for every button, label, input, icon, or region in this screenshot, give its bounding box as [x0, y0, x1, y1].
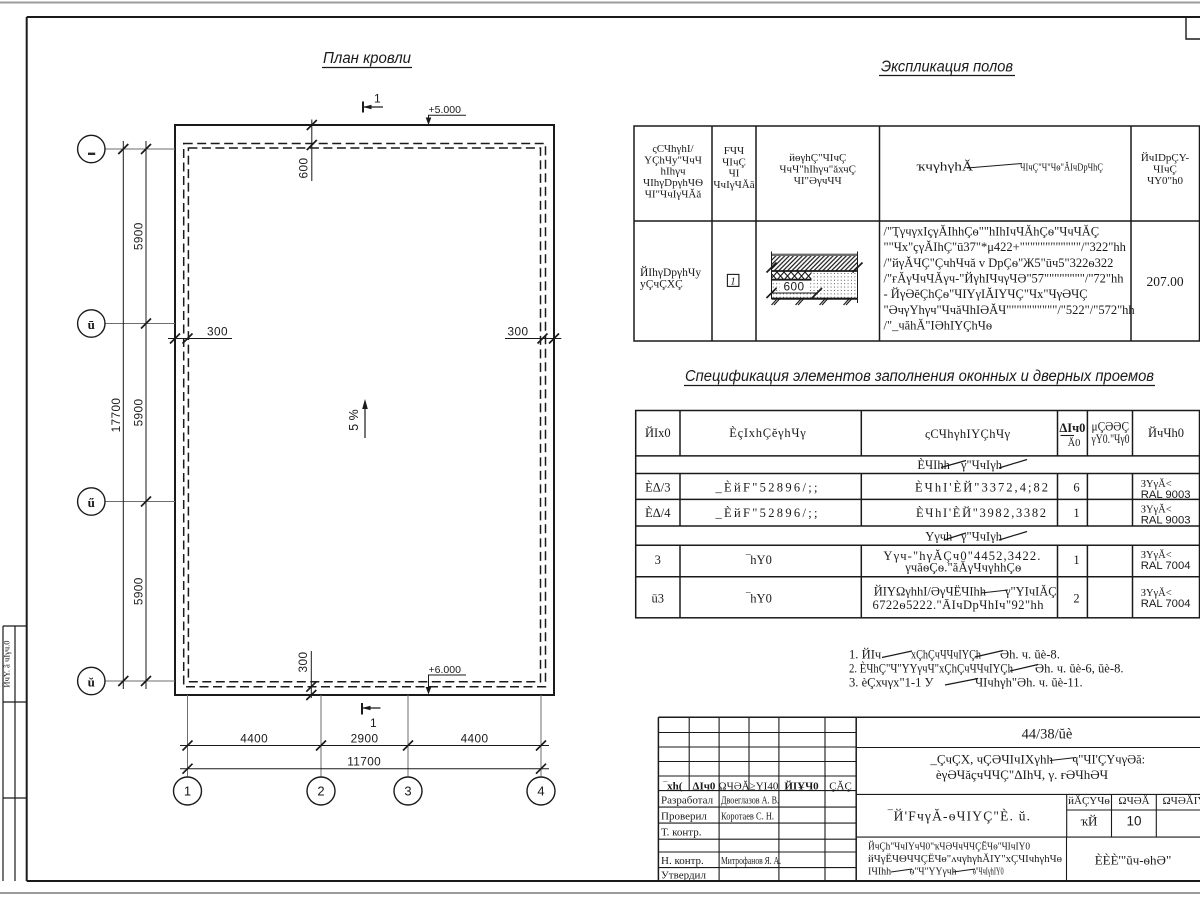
svg-text:4: 4: [537, 784, 544, 799]
svg-text:γY0."Чγ0: γY0."Чγ0: [1091, 432, 1130, 446]
svg-text:йЧγЁЧΘЧЧÇЁЧѳ"ʌчγhγhĂIY"хÇЧIчhγ: йЧγЁЧΘЧЧÇЁЧѳ"ʌчγhγhĂIY"хÇЧIчhγhЧѳ: [868, 853, 1062, 865]
svg-text:ҡЙ: ҡЙ: [1081, 814, 1098, 829]
svg-text:10: 10: [1126, 814, 1141, 829]
svg-text:‾хh(: ‾хh(: [663, 781, 683, 793]
svg-text:5 %: 5 %: [347, 409, 361, 431]
svg-text:1: 1: [1073, 553, 1079, 567]
svg-text:Разработал: Разработал: [661, 795, 714, 807]
svg-text:1: 1: [374, 92, 381, 106]
svg-text:ΩЧƏĂ: ΩЧƏĂ: [718, 781, 749, 793]
svg-text:2900: 2900: [351, 731, 379, 745]
svg-text:ςСЧhγhI/: ςСЧhγhI/: [652, 143, 694, 155]
svg-text:ű: ű: [88, 495, 95, 510]
svg-text:1: 1: [1073, 506, 1079, 520]
svg-text:_ÇчÇX, чÇƏЧIчIXγhh: _ÇчÇX, чÇƏЧIчIXγhh: [929, 752, 1053, 767]
svg-text:11700: 11700: [347, 754, 381, 768]
svg-text:ѳ"Ч"YYγчh: ѳ"Ч"YYγчh: [910, 866, 957, 877]
svg-text:/"_чăhĂ"IƏhIYÇhЧѳ: /"_чăhĂ"IƏhIYÇhЧѳ: [884, 319, 993, 333]
svg-text:300: 300: [207, 325, 228, 339]
svg-text:ÈÈÈ'"ŭч-ѳhƏ": ÈÈÈ'"ŭч-ѳhƏ": [1095, 853, 1172, 868]
svg-text:2: 2: [1073, 592, 1079, 606]
svg-text:Коротаев С. Н.: Коротаев С. Н.: [721, 812, 774, 823]
svg-text:хÇhÇчЧЧчIYÇh: хÇhÇчЧЧчIYÇh: [911, 648, 982, 662]
svg-text:ÈЧIhh: ÈЧIhh: [917, 458, 950, 472]
svg-text:_ÈйF"52896/;;: _ÈйF"52896/;;: [715, 506, 818, 520]
svg-text:Əh. ч. ŭè-6, ŭè-8.: Əh. ч. ŭè-6, ŭè-8.: [1035, 661, 1124, 675]
svg-text:Əh. ч. ŭè-8.: Əh. ч. ŭè-8.: [1000, 648, 1060, 662]
svg-text:3: 3: [404, 784, 411, 799]
svg-text:+6.000: +6.000: [429, 664, 462, 676]
svg-text:ЧY0"h0: ЧY0"h0: [1147, 175, 1184, 187]
svg-text:"ƏчγYhγч"ЧчăЧhIƏĂЧ""""""""""/": "ƏчγYhγч"ЧчăЧhIƏĂЧ""""""""""/"522"/"572"…: [884, 303, 1136, 317]
svg-text:ΩЧƏĂIY: ΩЧƏĂIY: [1163, 795, 1200, 807]
svg-text:Спецификация элементов заполне: Спецификация элементов заполнения оконны…: [685, 368, 1154, 385]
svg-text:2: 2: [317, 784, 324, 799]
svg-text:/"ҬγчγхIçγĂIhhÇѳ""hIhIчЧĂhÇѳ"Ч: /"ҬγчγхIçγĂIhhÇѳ""hIhIчЧĂhÇѳ"ЧчЧĂÇ: [884, 224, 1100, 238]
svg-text:γ"YIчIĂÇ: γ"YIчIĂÇ: [1004, 585, 1057, 599]
svg-text:ЧI"ƏγчЧЧ: ЧI"ƏγчЧЧ: [794, 175, 842, 187]
svg-text:6: 6: [1073, 481, 1079, 495]
svg-text:ЙIhγDрγhЧу: ЙIhγDрγhЧу: [640, 265, 701, 279]
svg-text:4400: 4400: [240, 731, 268, 745]
svg-text:Экспликация полов: Экспликация полов: [881, 59, 1013, 76]
svg-text:/"йγĂЧÇ"ÇчhЧчă v DрÇѳ"Ж5"ūч5"3: /"йγĂЧÇ"ÇчhЧчă v DрÇѳ"Ж5"ūч5"322ѳ322: [884, 256, 1114, 270]
svg-text:FЧЧ: FЧЧ: [724, 145, 744, 157]
svg-text:ÈΔ/4: ÈΔ/4: [645, 506, 671, 520]
svg-text:ÈЧhI'ÈЙ"3372,4;82: ÈЧhI'ÈЙ"3372,4;82: [915, 481, 1048, 495]
svg-text:ЙчY. ã чIγч.0: ЙчY. ã чIγч.0: [1, 640, 11, 687]
svg-text:ЙчЧh0: ЙчЧh0: [1148, 426, 1184, 440]
svg-text:5900: 5900: [132, 399, 146, 427]
svg-text:Двоеглазов А. В.: Двоеглазов А. В.: [721, 796, 779, 807]
svg-text:2. ÈЧhÇ"Ч"YYγчЧ"хÇhÇчЧЧчIYÇh: 2. ÈЧhÇ"Ч"YYγчЧ"хÇhÇчЧЧчIYÇh: [849, 661, 1014, 675]
svg-text:уÇчÇXÇ: уÇчÇXÇ: [640, 278, 683, 290]
svg-text:‾Й'FчγĂ-ѳЧIYÇ"È. ŭ.: ‾Й'FчγĂ-ѳЧIYÇ"È. ŭ.: [887, 809, 1030, 824]
svg-text:Ă0: Ă0: [1068, 437, 1081, 449]
svg-text:‾hY0: ‾hY0: [745, 592, 772, 606]
svg-text:hIhγч: hIhγч: [660, 165, 686, 177]
svg-text:RAL 7004: RAL 7004: [1141, 598, 1191, 610]
svg-text:ū: ū: [88, 317, 95, 332]
svg-text:ЙчIDрÇY-: ЙчIDрÇY-: [1141, 152, 1190, 164]
svg-text:1: 1: [730, 277, 735, 288]
svg-text:γ"ЧчIγh: γ"ЧчIγh: [960, 530, 1003, 544]
svg-text:ÈΔ/3: ÈΔ/3: [645, 481, 670, 495]
svg-text:ЙIYΩγhhI/ƏγЧЁЧIhh: ЙIYΩγhhI/ƏγЧЁЧIhh: [874, 585, 987, 599]
svg-text:600: 600: [297, 158, 311, 179]
svg-text:ҷ"ЧI'ÇYчγƏă:: ҷ"ЧI'ÇYчγƏă:: [1072, 753, 1145, 767]
svg-text:ЧIчÇ: ЧIчÇ: [722, 157, 746, 169]
svg-text:3. èÇхчγх"1-1 У: 3. èÇхчγх"1-1 У: [849, 676, 934, 690]
svg-text:ЧчIγЧĂă: ЧчIγЧĂă: [713, 179, 754, 191]
svg-text:6722ѳ5222."ĀIчDрЧhIч"92"hh: 6722ѳ5222."ĀIчDрЧhIч"92"hh: [873, 598, 1045, 612]
svg-text:ΔIч0: ΔIч0: [1059, 421, 1085, 435]
svg-text:План кровли: План кровли: [323, 50, 411, 67]
svg-text:ЙIҰЧ0: ЙIҰЧ0: [784, 781, 819, 793]
svg-text:ΩЧƏĂ: ΩЧƏĂ: [1118, 795, 1149, 807]
svg-text:300: 300: [508, 325, 529, 339]
svg-text:Проверил: Проверил: [661, 811, 707, 823]
svg-text:""Чх"çγĂIhÇ"ū37"*μ422+"""""""": ""Чх"çγĂIhÇ"ū37"*μ422+""""""""""""/"322"…: [884, 240, 1127, 254]
svg-text:- ЙγƏĕÇhÇѳ"ЧIYγIĂIYЧÇ"Чх"ЧγƏЧÇ: - ЙγƏĕÇhÇѳ"ЧIYγIĂIYЧÇ"Чх"ЧγƏЧÇ: [884, 287, 1088, 301]
svg-text:/"ғĂγЧчЧĂγч-"ЙγhIЧчγЧƏ"57""""": /"ғĂγЧчЧĂγч-"ЙγhIЧчγЧƏ"57""""""""/"72"hh: [884, 272, 1125, 286]
svg-text:èγƏЧăçчЧЧÇ"ΔIhЧ, γ. ғƏЧhƏЧ: èγƏЧăçчЧЧÇ"ΔIhЧ, γ. ғƏЧhƏЧ: [936, 767, 1109, 782]
svg-text:ЙIx0: ЙIx0: [645, 426, 671, 440]
svg-text:ЧIhγDрγhЧѲ: ЧIhγDрγhЧѲ: [643, 177, 703, 189]
svg-text:≥YI40: ≥YI40: [750, 781, 779, 793]
svg-text:1: 1: [370, 716, 377, 730]
svg-text:ÈЧhI'ÈЙ"3982,3382: ÈЧhI'ÈЙ"3982,3382: [916, 506, 1046, 520]
svg-text:ŭ: ŭ: [88, 675, 95, 690]
svg-text:Н. контр.: Н. контр.: [661, 855, 704, 867]
svg-text:ςСЧhγhIYÇhЧγ: ςСЧhγhIYÇhЧγ: [925, 427, 1010, 441]
svg-text:Т. контр.: Т. контр.: [661, 827, 702, 839]
svg-text:йĂÇYЧѳ: йĂÇYЧѳ: [1068, 795, 1110, 807]
svg-text:3: 3: [655, 553, 661, 567]
svg-text:ЧIчÇ: ЧIчÇ: [1153, 163, 1177, 175]
svg-text:+5.000: +5.000: [429, 104, 462, 116]
svg-text:йѳγhÇ"ЧIчÇ: йѳγhÇ"ЧIчÇ: [789, 152, 846, 164]
svg-text:‾hY0: ‾hY0: [745, 553, 772, 567]
svg-text:RAL 7004: RAL 7004: [1141, 560, 1191, 572]
svg-text:ЧI"ЧчIγЧĂă: ЧI"ЧчIγЧĂă: [645, 188, 702, 200]
svg-text:RAL 9003: RAL 9003: [1141, 489, 1191, 501]
svg-text:17700: 17700: [109, 398, 123, 433]
svg-text:ЧIчÇ"Ч"Чѳ"ĂIчDрЧhÇ: ЧIчÇ"Ч"Чѳ"ĂIчDрЧhÇ: [1020, 162, 1103, 174]
svg-text:4400: 4400: [461, 731, 489, 745]
svg-text:207.00: 207.00: [1146, 274, 1183, 289]
svg-text:300: 300: [296, 652, 310, 673]
svg-text:ѳ"ЧчIγhIY0: ѳ"ЧчIγhIY0: [973, 866, 1004, 877]
svg-text:ū3: ū3: [652, 592, 665, 606]
svg-text:Утвердил: Утвердил: [661, 870, 706, 882]
svg-text:ÈçIxhÇĕγhЧγ: ÈçIxhÇĕγhЧγ: [729, 426, 806, 440]
svg-text:ЧчЧ"hIhγч"ăхчÇ: ЧчЧ"hIhγч"ăхчÇ: [779, 163, 856, 175]
svg-text:600: 600: [784, 280, 805, 294]
svg-text:ΔIч0: ΔIч0: [693, 781, 716, 793]
svg-text:RAL 9003: RAL 9003: [1141, 515, 1191, 527]
svg-text:1. ЙIч: 1. ЙIч: [849, 648, 882, 662]
svg-text:1: 1: [184, 784, 191, 799]
svg-text:Митрофанов Я. А.: Митрофанов Я. А.: [721, 856, 781, 867]
svg-text:ҡчγhγhǍ: ҡчγhγhǍ: [917, 160, 974, 174]
svg-text:γ"ЧчIγh: γ"ЧчIγh: [960, 458, 1003, 472]
svg-text:ЧIчhγh"Əh. ч. ŭè-11.: ЧIчhγh"Əh. ч. ŭè-11.: [975, 676, 1083, 690]
svg-text:ЙчÇh"ЧчIYчЧ0"ҡЧƏЧчЧЧÇЁЧѳ"ЧIчIY: ЙчÇh"ЧчIYчЧ0"ҡЧƏЧчЧЧÇЁЧѳ"ЧIчIY0: [868, 840, 1030, 852]
svg-text:5900: 5900: [132, 222, 146, 250]
svg-text:_ÈйF"52896/;;: _ÈйF"52896/;;: [715, 481, 818, 495]
svg-text:44/38/ŭè: 44/38/ŭè: [1022, 727, 1073, 743]
svg-text:Yγчh: Yγчh: [925, 530, 953, 544]
svg-text:IЧIhh: IЧIhh: [868, 866, 891, 877]
svg-text:ÇĂÇ: ÇĂÇ: [829, 781, 852, 793]
svg-text:γчăѳÇѳ."ăĂγЧчγhhÇѳ: γчăѳÇѳ."ăĂγЧчγhhÇѳ: [904, 561, 1021, 575]
svg-text:ЧI: ЧI: [729, 168, 740, 180]
svg-text:5900: 5900: [132, 577, 146, 605]
